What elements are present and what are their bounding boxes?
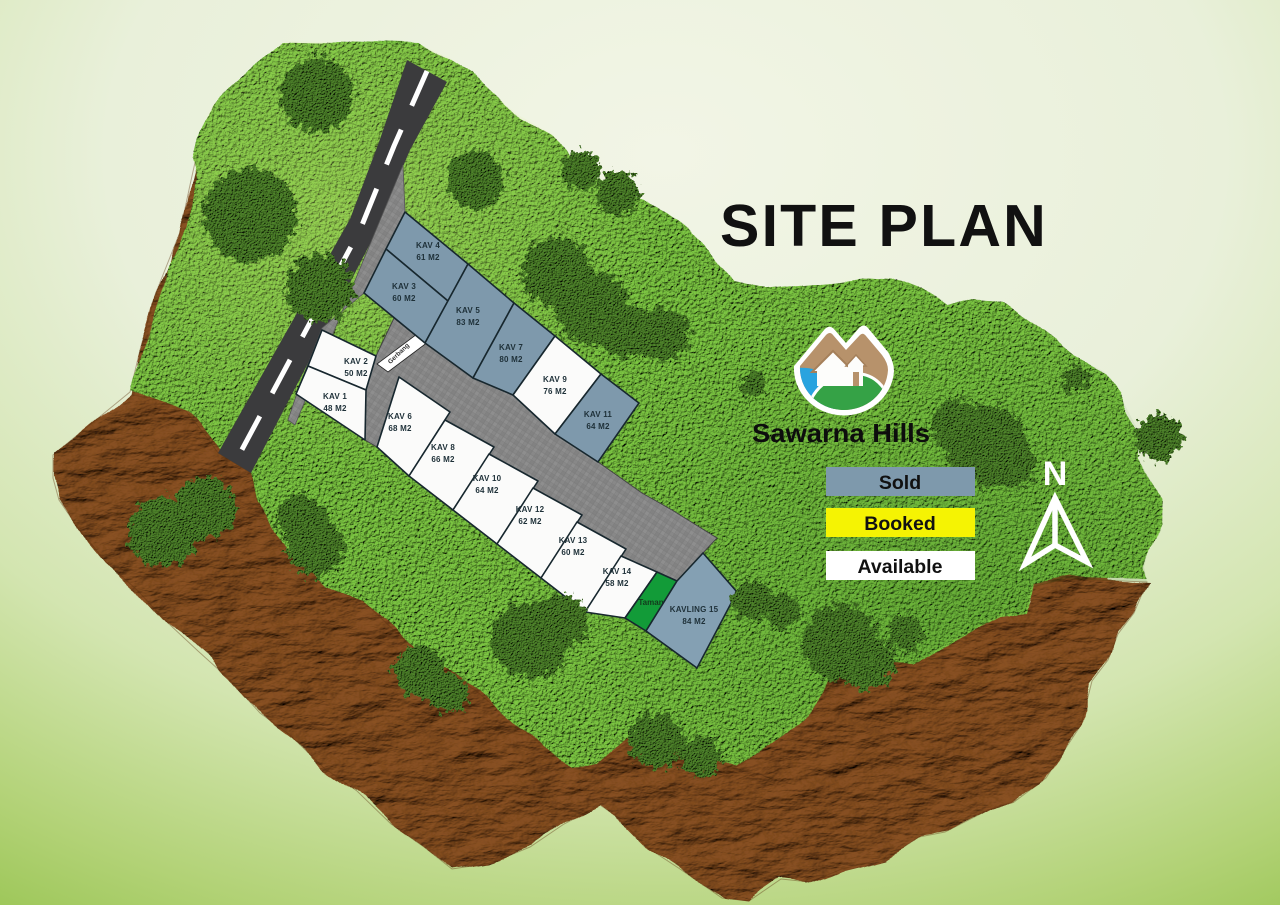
svg-text:66 M2: 66 M2 [431, 455, 455, 464]
svg-text:Taman: Taman [638, 598, 663, 607]
svg-text:KAV 9: KAV 9 [543, 375, 567, 384]
svg-text:Available: Available [858, 556, 943, 578]
svg-text:KAV 14: KAV 14 [603, 567, 632, 576]
svg-text:48 M2: 48 M2 [323, 404, 347, 413]
svg-text:58 M2: 58 M2 [605, 579, 629, 588]
svg-text:KAV 2: KAV 2 [344, 357, 368, 366]
svg-text:80 M2: 80 M2 [499, 355, 523, 364]
svg-text:84 M2: 84 M2 [682, 617, 706, 626]
svg-text:61 M2: 61 M2 [416, 253, 440, 262]
svg-text:68 M2: 68 M2 [388, 424, 412, 433]
svg-text:KAV 4: KAV 4 [416, 241, 440, 250]
svg-text:Booked: Booked [864, 513, 936, 535]
svg-text:KAV 8: KAV 8 [431, 443, 455, 452]
svg-text:KAV 3: KAV 3 [392, 282, 416, 291]
svg-text:60 M2: 60 M2 [392, 294, 416, 303]
svg-text:KAV 13: KAV 13 [559, 536, 588, 545]
svg-text:KAV 5: KAV 5 [456, 306, 480, 315]
svg-text:Sawarna Hills: Sawarna Hills [752, 418, 930, 448]
svg-text:Sold: Sold [879, 472, 921, 494]
svg-text:KAV 7: KAV 7 [499, 343, 523, 352]
svg-text:KAV 1: KAV 1 [323, 392, 347, 401]
svg-text:SITE PLAN: SITE PLAN [720, 193, 1048, 259]
svg-text:N: N [1043, 455, 1068, 493]
svg-text:76 M2: 76 M2 [543, 387, 567, 396]
svg-text:KAVLING 15: KAVLING 15 [670, 605, 719, 614]
svg-text:KAV 10: KAV 10 [473, 474, 502, 483]
svg-text:83 M2: 83 M2 [456, 318, 480, 327]
svg-text:60 M2: 60 M2 [561, 548, 585, 557]
svg-text:KAV 6: KAV 6 [388, 412, 412, 421]
svg-text:KAV 11: KAV 11 [584, 410, 613, 419]
svg-text:62 M2: 62 M2 [518, 517, 542, 526]
svg-text:64 M2: 64 M2 [475, 486, 499, 495]
svg-text:KAV 12: KAV 12 [516, 505, 545, 514]
svg-text:50 M2: 50 M2 [344, 369, 368, 378]
svg-text:64 M2: 64 M2 [586, 422, 610, 431]
